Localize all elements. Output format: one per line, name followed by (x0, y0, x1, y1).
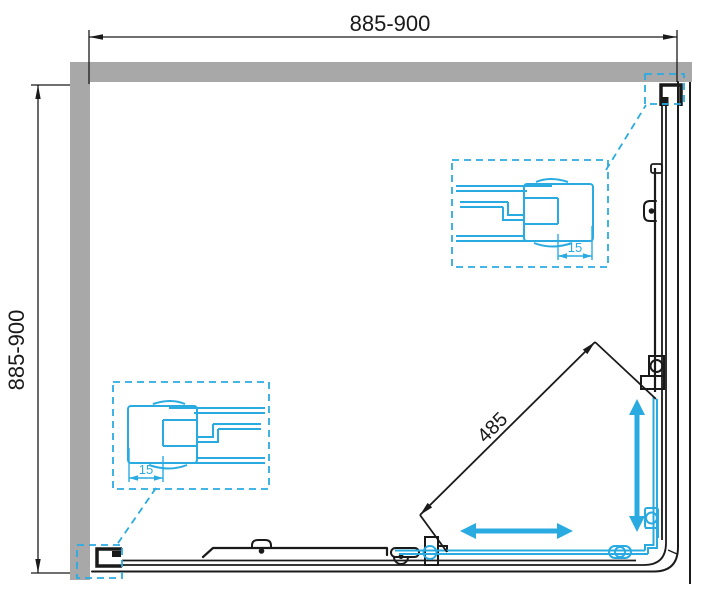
detail-callout-top: 15 (452, 74, 684, 267)
sliding-door-right-closed (641, 164, 664, 392)
dimension-label-diagonal: 485 (473, 408, 512, 447)
door-roller-bottom (391, 548, 419, 557)
shower-enclosure-diagram: 15 15 885-900 885-900 485 (0, 0, 708, 600)
technical-drawing-canvas: 15 15 885-900 885-900 485 (0, 0, 708, 600)
dimension-diagonal: 485 (418, 340, 656, 552)
sliding-door-bottom-open (395, 546, 648, 559)
wall-left (70, 62, 90, 580)
dimension-label-left: 885-900 (4, 310, 29, 391)
sliding-door-right-open (645, 396, 658, 554)
dimension-label-top: 885-900 (350, 11, 431, 36)
detail-box-bottom (113, 382, 269, 489)
dimension-label-detail-bottom: 15 (139, 462, 153, 477)
door-handle-bottom (252, 540, 271, 548)
detail-leader-bottom (116, 488, 156, 546)
slide-arrow-horizontal (460, 523, 573, 539)
detail-leader-top (606, 105, 646, 170)
slide-arrow-vertical (629, 399, 645, 532)
wall-profile-bottom-left (97, 549, 122, 566)
dimension-left: 885-900 (4, 85, 70, 573)
wall-top (70, 62, 692, 82)
dimension-label-detail-top: 15 (568, 240, 582, 255)
enclosure-frame (92, 82, 690, 584)
detail-box-top (452, 160, 608, 267)
